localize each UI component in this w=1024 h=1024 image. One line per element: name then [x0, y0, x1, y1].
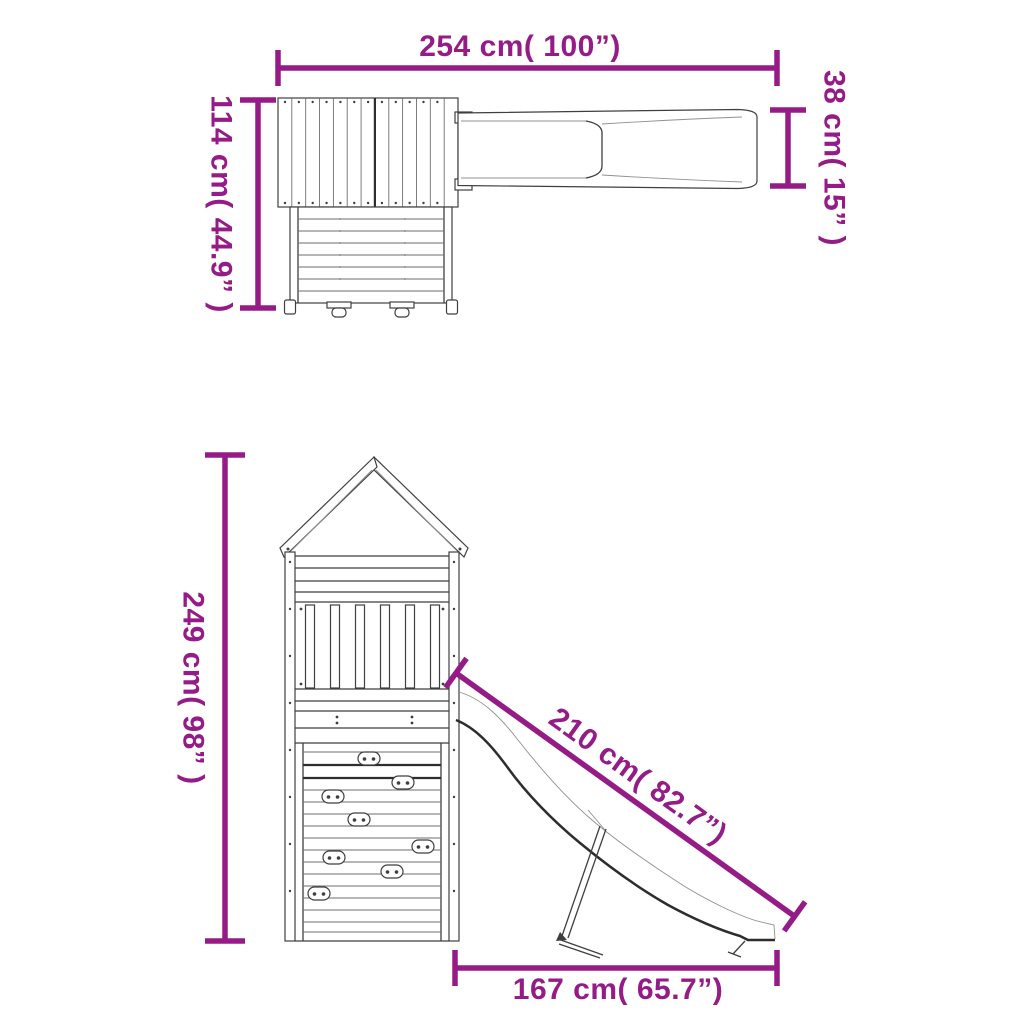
tower-front	[285, 552, 459, 941]
dimension-label-overall-width: 254 cm( 100”)	[419, 30, 621, 63]
railing-balusters	[300, 605, 445, 688]
slide-support-leg	[556, 810, 606, 958]
top-view: 254 cm( 100”) 114 cm( 44.9” ) 38 cm( 15”…	[205, 30, 851, 317]
rails	[295, 568, 449, 743]
dimension-slide-length: 210 cm( 82.7”)	[445, 641, 817, 931]
dimension-base-width: 167 cm( 65.7”)	[455, 950, 777, 1006]
dimension-label-house-depth: 114 cm( 44.9” )	[205, 95, 238, 313]
dimension-line	[770, 110, 806, 186]
deck-brackets	[327, 302, 414, 317]
right-post	[449, 552, 459, 941]
dimension-label-slide-length: 210 cm( 82.7”)	[543, 701, 733, 851]
dimension-tower-height: 249 cm( 98” )	[177, 455, 246, 941]
roof-front	[280, 457, 468, 557]
dimension-label-tower-height: 249 cm( 98” )	[177, 591, 210, 784]
playset-dimension-drawing: 254 cm( 100”) 114 cm( 44.9” ) 38 cm( 15”…	[0, 0, 1024, 1024]
dimension-label-slide-width: 38 cm( 15” )	[818, 70, 851, 246]
dimension-line	[205, 455, 245, 941]
dimension-slide-width: 38 cm( 15” )	[770, 70, 851, 246]
dimension-overall-width: 254 cm( 100”)	[278, 30, 777, 86]
deck-plan	[285, 207, 458, 317]
climbing-wall	[295, 743, 449, 941]
dimension-house-depth: 114 cm( 44.9” )	[205, 95, 277, 313]
left-post	[285, 552, 295, 941]
dimension-diagram-canvas: 254 cm( 100”) 114 cm( 44.9” ) 38 cm( 15”…	[0, 0, 1024, 1024]
roof-plan	[278, 98, 458, 207]
dimension-line	[445, 658, 805, 931]
slide-plan	[455, 110, 757, 191]
front-view: 249 cm( 98” ) 210 cm( 82.7”) 167 cm( 65.…	[177, 455, 818, 1006]
dimension-label-base-width: 167 cm( 65.7”)	[513, 973, 723, 1006]
dimension-line	[240, 100, 276, 308]
platform-screws	[336, 716, 414, 725]
